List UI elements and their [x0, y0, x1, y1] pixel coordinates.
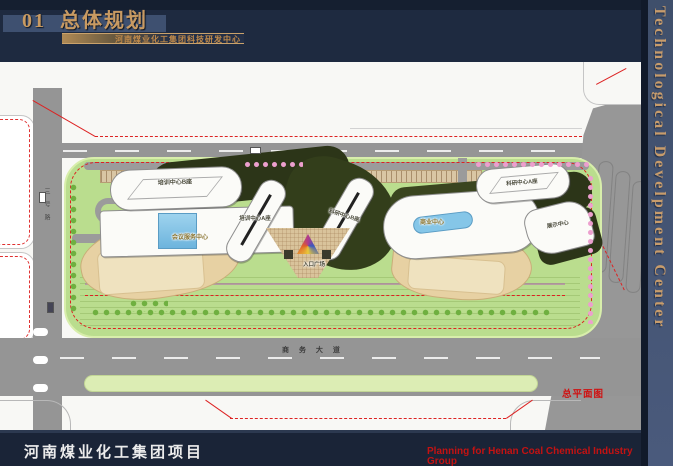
west-parcel-south	[0, 252, 35, 344]
south-avenue-name: 商 务 大 道	[282, 345, 344, 355]
label-entry-plaza: 入口广场	[286, 262, 342, 269]
lane-markings	[60, 357, 600, 359]
north-boundary-redline	[95, 136, 582, 137]
parcel-line	[350, 128, 582, 129]
south-parcel-redline	[230, 418, 506, 419]
median-strip	[84, 375, 538, 392]
side-banner-edge	[641, 0, 648, 466]
footer: 河南煤业化工集团项目 Planning for Henan Coal Chemi…	[0, 430, 641, 466]
section-number: 01	[22, 10, 46, 32]
section-title: 总体规划	[60, 10, 148, 32]
flowering-tree-row	[474, 160, 590, 170]
flowering-tree-row	[243, 160, 303, 169]
median-opening	[33, 356, 48, 364]
west-parcel-north	[0, 115, 35, 249]
subtitle-text: 河南煤业化工集团科技研发中心	[115, 35, 241, 44]
car	[47, 302, 54, 313]
median-opening	[33, 328, 48, 336]
tree-cluster	[128, 298, 168, 312]
east-podium-roof	[407, 255, 506, 296]
footer-caption: Planning for Henan Coal Chemical Industr…	[427, 447, 641, 466]
northeast-parcel	[583, 62, 641, 105]
site-plan-drawing: 三号路 商 务 大 道	[0, 62, 641, 430]
side-banner: Technological Develpment Center	[648, 0, 673, 466]
label-conference-service-center: 会议服务中心	[120, 235, 260, 242]
header: 01总体规划 河南煤业化工集团科技研发中心	[0, 0, 641, 62]
tree-row	[68, 182, 79, 312]
car	[39, 192, 46, 203]
side-banner-text: Technological Develpment Center	[650, 6, 668, 329]
drawing-title: 总平面图	[562, 386, 604, 400]
presentation-slide: 01总体规划 河南煤业化工集团科技研发中心 三号路	[0, 0, 673, 466]
car	[250, 147, 261, 154]
label-commercial-center: 商业中心	[392, 220, 472, 227]
page-title: 01总体规划	[22, 4, 148, 33]
parcel-boundary-redline	[0, 256, 30, 340]
planter	[322, 250, 331, 259]
project-title: 河南煤业化工集团项目	[24, 441, 204, 462]
label-training-center-a: 培训中心A座	[224, 216, 286, 223]
pool	[158, 213, 197, 249]
south-parcel-corner-left	[0, 400, 71, 430]
parcel-boundary-redline	[0, 119, 30, 245]
south-parcel-corner-right	[510, 400, 581, 430]
flowering-tree-row	[586, 174, 596, 324]
footer-caption-line1: Planning for Henan Coal Chemical Industr…	[427, 447, 641, 466]
boundary-redline	[205, 400, 232, 419]
planter	[284, 250, 293, 259]
median-opening	[33, 384, 48, 392]
subtitle-bar: 河南煤业化工集团科技研发中心	[62, 33, 244, 44]
